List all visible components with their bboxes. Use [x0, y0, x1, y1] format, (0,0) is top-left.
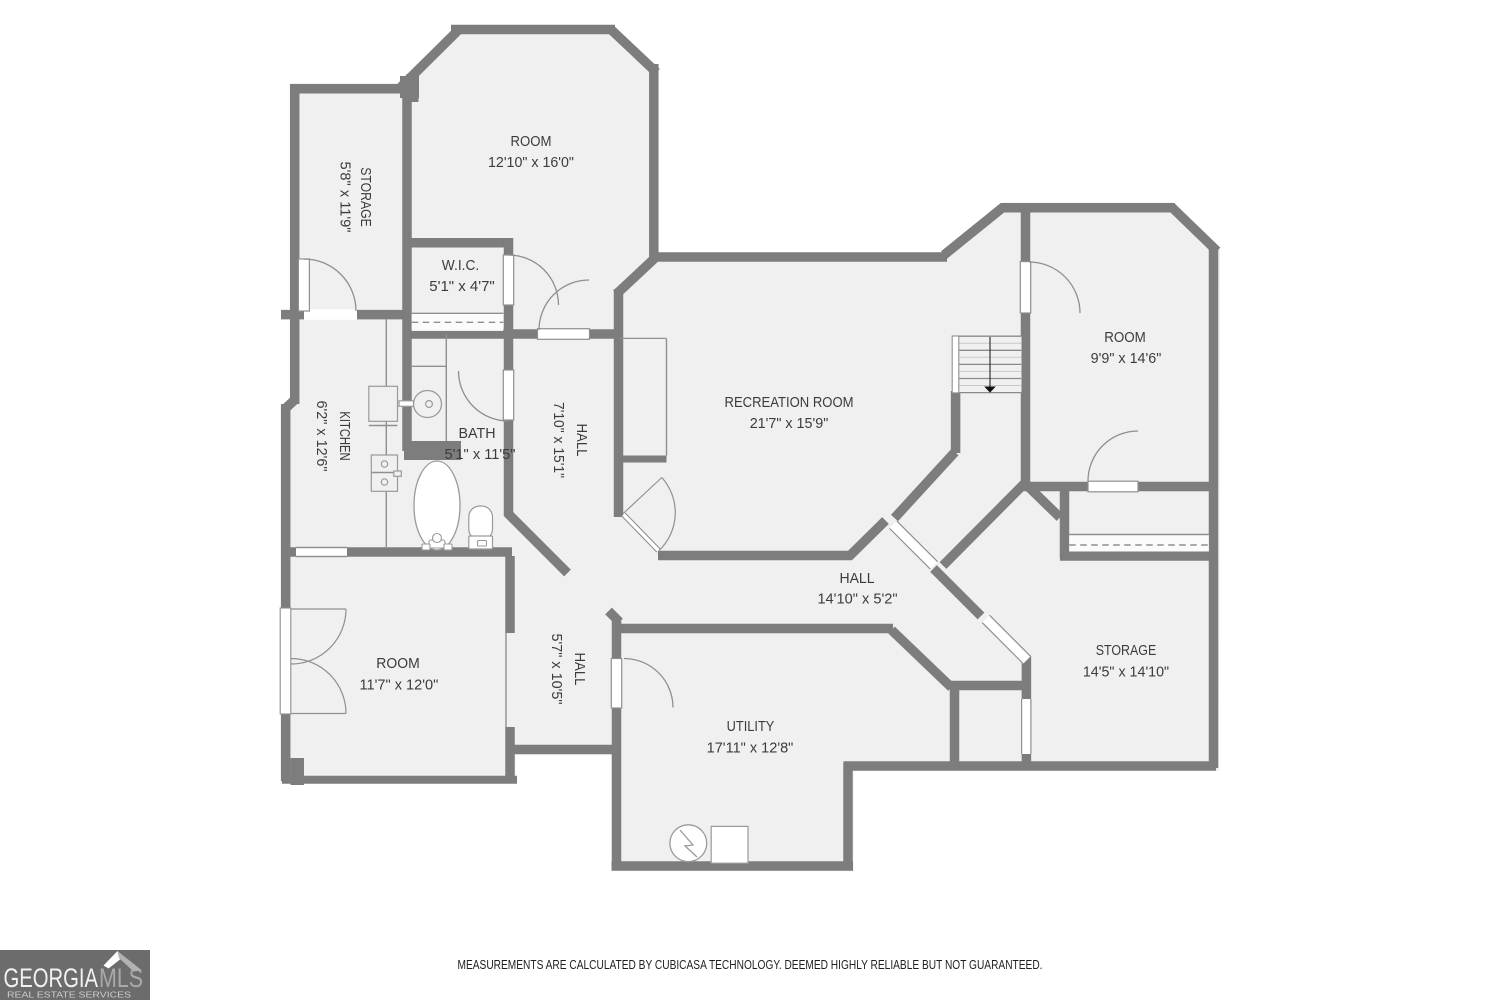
svg-text:UTILITY: UTILITY: [727, 718, 775, 735]
svg-text:5'8" x 11'9": 5'8" x 11'9": [337, 162, 354, 233]
svg-text:6'2" x 12'6": 6'2" x 12'6": [313, 401, 330, 472]
svg-text:W.I.C.: W.I.C.: [442, 257, 479, 274]
svg-text:21'7" x 15'9": 21'7" x 15'9": [750, 415, 829, 432]
svg-text:STORAGE: STORAGE: [1096, 642, 1157, 659]
svg-text:HALL: HALL: [839, 570, 874, 587]
svg-text:ROOM: ROOM: [376, 655, 419, 672]
svg-text:ROOM: ROOM: [511, 133, 552, 150]
svg-text:5'7" x 10'5": 5'7" x 10'5": [548, 634, 565, 705]
svg-text:REAL ESTATE SERVICES: REAL ESTATE SERVICES: [7, 991, 131, 1000]
svg-text:14'10" x 5'2": 14'10" x 5'2": [817, 591, 897, 608]
svg-text:MEASUREMENTS ARE CALCULATED BY: MEASUREMENTS ARE CALCULATED BY CUBICASA …: [458, 957, 1043, 972]
svg-text:5'1" x 11'5": 5'1" x 11'5": [445, 446, 516, 463]
svg-text:STORAGE: STORAGE: [357, 167, 374, 226]
svg-text:HALL: HALL: [571, 653, 588, 686]
svg-text:7'10" x 15'1": 7'10" x 15'1": [550, 402, 567, 478]
svg-text:11'7" x 12'0": 11'7" x 12'0": [359, 677, 438, 694]
svg-text:RECREATION ROOM: RECREATION ROOM: [725, 394, 854, 411]
svg-text:KITCHEN: KITCHEN: [336, 411, 353, 460]
svg-text:ROOM: ROOM: [1104, 329, 1146, 346]
svg-text:9'9" x 14'6": 9'9" x 14'6": [1091, 350, 1162, 367]
svg-text:12'10" x 16'0": 12'10" x 16'0": [488, 154, 574, 171]
svg-text:BATH: BATH: [459, 425, 496, 442]
svg-text:HALL: HALL: [573, 424, 590, 457]
svg-text:17'11" x 12'8": 17'11" x 12'8": [707, 740, 794, 757]
svg-text:14'5" x 14'10": 14'5" x 14'10": [1083, 664, 1169, 681]
svg-text:5'1" x 4'7": 5'1" x 4'7": [429, 278, 495, 295]
svg-text:GEORGIA: GEORGIA: [4, 963, 99, 993]
